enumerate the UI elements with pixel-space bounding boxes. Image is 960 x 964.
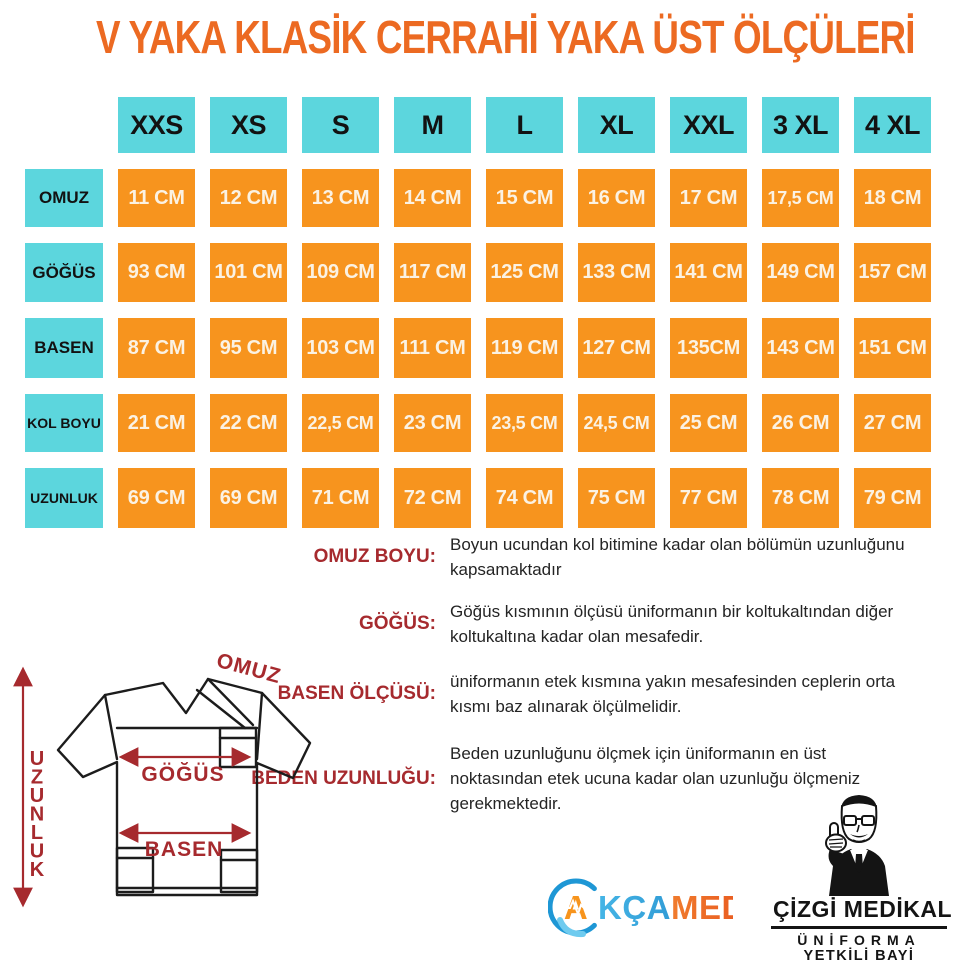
measurement-value-cell: 22,5 CM	[302, 394, 379, 452]
measurement-value-cell: 14 CM	[394, 169, 471, 227]
measurement-value-cell: 69 CM	[210, 468, 287, 528]
akcamed-logo: A KÇAMED	[548, 874, 733, 944]
gogus-label: GÖĞÜS	[141, 762, 224, 786]
measurement-value-cell: 101 CM	[210, 243, 287, 302]
scrub-top-diagram: UZUNLUK OMUZ GÖĞÜS BASEN	[0, 645, 340, 960]
size-column-header: L	[486, 97, 563, 153]
definition-text: üniformanın etek kısmına yakın mesafesin…	[450, 669, 930, 719]
measurement-row-label: GÖĞÜS	[25, 243, 103, 302]
measurement-value-cell: 71 CM	[302, 468, 379, 528]
measurement-value-cell: 22 CM	[210, 394, 287, 452]
measurement-value-cell: 109 CM	[302, 243, 379, 302]
measurement-value-cell: 12 CM	[210, 169, 287, 227]
akcamed-part-med: MED	[671, 889, 733, 926]
measurement-value-cell: 27 CM	[854, 394, 931, 452]
measurement-value-cell: 95 CM	[210, 318, 287, 378]
measurement-row-label: BASEN	[25, 318, 103, 378]
size-column-header: XL	[578, 97, 655, 153]
measurement-value-cell: 72 CM	[394, 468, 471, 528]
akcamed-part-kca: KÇA	[598, 889, 671, 926]
size-column-header: M	[394, 97, 471, 153]
measurement-value-cell: 151 CM	[854, 318, 931, 378]
measurement-value-cell: 26 CM	[762, 394, 839, 452]
measurement-value-cell: 11 CM	[118, 169, 195, 227]
measurement-value-cell: 79 CM	[854, 468, 931, 528]
size-table: XXSXSSMLXLXXL3 XL4 XLOMUZ11 CM12 CM13 CM…	[25, 97, 931, 528]
measurement-value-cell: 16 CM	[578, 169, 655, 227]
measurement-value-cell: 15 CM	[486, 169, 563, 227]
measurement-row-label: KOL BOYU	[25, 394, 103, 452]
measurement-value-cell: 23,5 CM	[486, 394, 563, 452]
measurement-value-cell: 17 CM	[670, 169, 747, 227]
mascot-illustration	[813, 792, 905, 896]
measurement-value-cell: 21 CM	[118, 394, 195, 452]
size-column-header: 3 XL	[762, 97, 839, 153]
size-column-header: XS	[210, 97, 287, 153]
measurement-value-cell: 77 CM	[670, 468, 747, 528]
measurement-value-cell: 149 CM	[762, 243, 839, 302]
definition-text: Göğüs kısmının ölçüsü üniformanın bir ko…	[450, 599, 930, 649]
measurement-row-label: UZUNLUK	[25, 468, 103, 528]
cizgi-uniforma-text: ÜNİFORMA	[797, 932, 920, 948]
chest-pocket	[220, 728, 256, 767]
measurement-value-cell: 23 CM	[394, 394, 471, 452]
scrub-top-outline	[58, 679, 310, 895]
measurement-row-label: OMUZ	[25, 169, 103, 227]
measurement-value-cell: 141 CM	[670, 243, 747, 302]
cizgi-medikal-logo: ÇİZGİ MEDİKAL ÜNİFORMA YETKİLİ BAYİ	[770, 792, 948, 964]
measurement-value-cell: 87 CM	[118, 318, 195, 378]
definition-block: OMUZ BOYU:Boyun ucundan kol bitimine kad…	[0, 532, 930, 582]
measurement-value-cell: 157 CM	[854, 243, 931, 302]
cizgi-brand-name: ÇİZGİ MEDİKAL	[771, 896, 947, 929]
page-title: V YAKA KLASİK CERRAHİ YAKA ÜST ÖLÇÜLERİ	[96, 10, 864, 64]
measurement-value-cell: 24,5 CM	[578, 394, 655, 452]
definition-text: Boyun ucundan kol bitimine kadar olan bö…	[450, 532, 930, 582]
measurement-value-cell: 13 CM	[302, 169, 379, 227]
measurement-value-cell: 143 CM	[762, 318, 839, 378]
measurement-value-cell: 103 CM	[302, 318, 379, 378]
measurement-value-cell: 78 CM	[762, 468, 839, 528]
measurement-value-cell: 125 CM	[486, 243, 563, 302]
measurement-value-cell: 74 CM	[486, 468, 563, 528]
definition-block: GÖĞÜS:Göğüs kısmının ölçüsü üniformanın …	[0, 599, 930, 649]
measurement-value-cell: 17,5 CM	[762, 169, 839, 227]
uzunluk-label-vertical: UZUNLUK	[30, 748, 45, 881]
basen-label: BASEN	[145, 838, 224, 861]
definition-label: GÖĞÜS:	[0, 613, 450, 635]
table-corner-spacer	[25, 97, 103, 153]
size-column-header: 4 XL	[854, 97, 931, 153]
measurement-value-cell: 117 CM	[394, 243, 471, 302]
measurement-value-cell: 93 CM	[118, 243, 195, 302]
measurement-value-cell: 18 CM	[854, 169, 931, 227]
measurement-value-cell: 75 CM	[578, 468, 655, 528]
measurement-value-cell: 111 CM	[394, 318, 471, 378]
size-column-header: XXS	[118, 97, 195, 153]
measurement-value-cell: 119 CM	[486, 318, 563, 378]
size-column-header: S	[302, 97, 379, 153]
cizgi-yetkili-bayi-text: YETKİLİ BAYİ	[804, 948, 915, 964]
measurement-value-cell: 133 CM	[578, 243, 655, 302]
measurement-value-cell: 135CM	[670, 318, 747, 378]
definition-label: OMUZ BOYU:	[0, 546, 450, 568]
akcamed-wordmark: KÇAMED	[598, 889, 733, 926]
uzunluk-letter: K	[30, 859, 45, 881]
size-column-header: XXL	[670, 97, 747, 153]
measurement-value-cell: 127 CM	[578, 318, 655, 378]
measurement-value-cell: 69 CM	[118, 468, 195, 528]
measurement-value-cell: 25 CM	[670, 394, 747, 452]
